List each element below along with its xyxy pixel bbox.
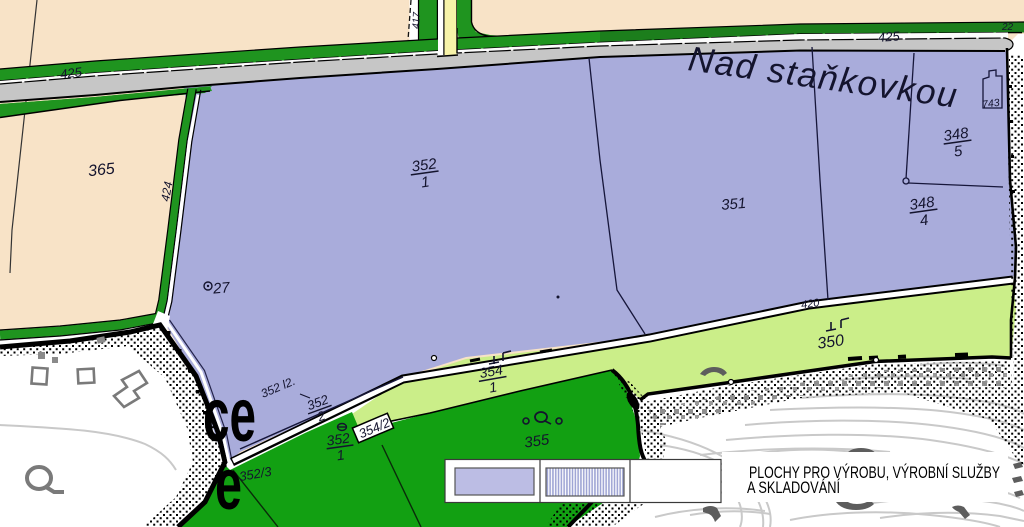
svg-text:425: 425 (877, 28, 900, 45)
svg-text:27: 27 (211, 279, 231, 298)
svg-text:365: 365 (87, 160, 115, 180)
svg-text:743: 743 (981, 97, 1000, 111)
svg-text:355: 355 (523, 431, 551, 451)
svg-text:e: e (215, 445, 242, 525)
svg-text:22: 22 (1001, 22, 1014, 33)
svg-text:351: 351 (720, 195, 746, 214)
svg-text:417: 417 (411, 11, 423, 29)
svg-text:425: 425 (59, 64, 83, 82)
svg-text:A SKLADOVÁNÍ: A SKLADOVÁNÍ (747, 478, 840, 497)
